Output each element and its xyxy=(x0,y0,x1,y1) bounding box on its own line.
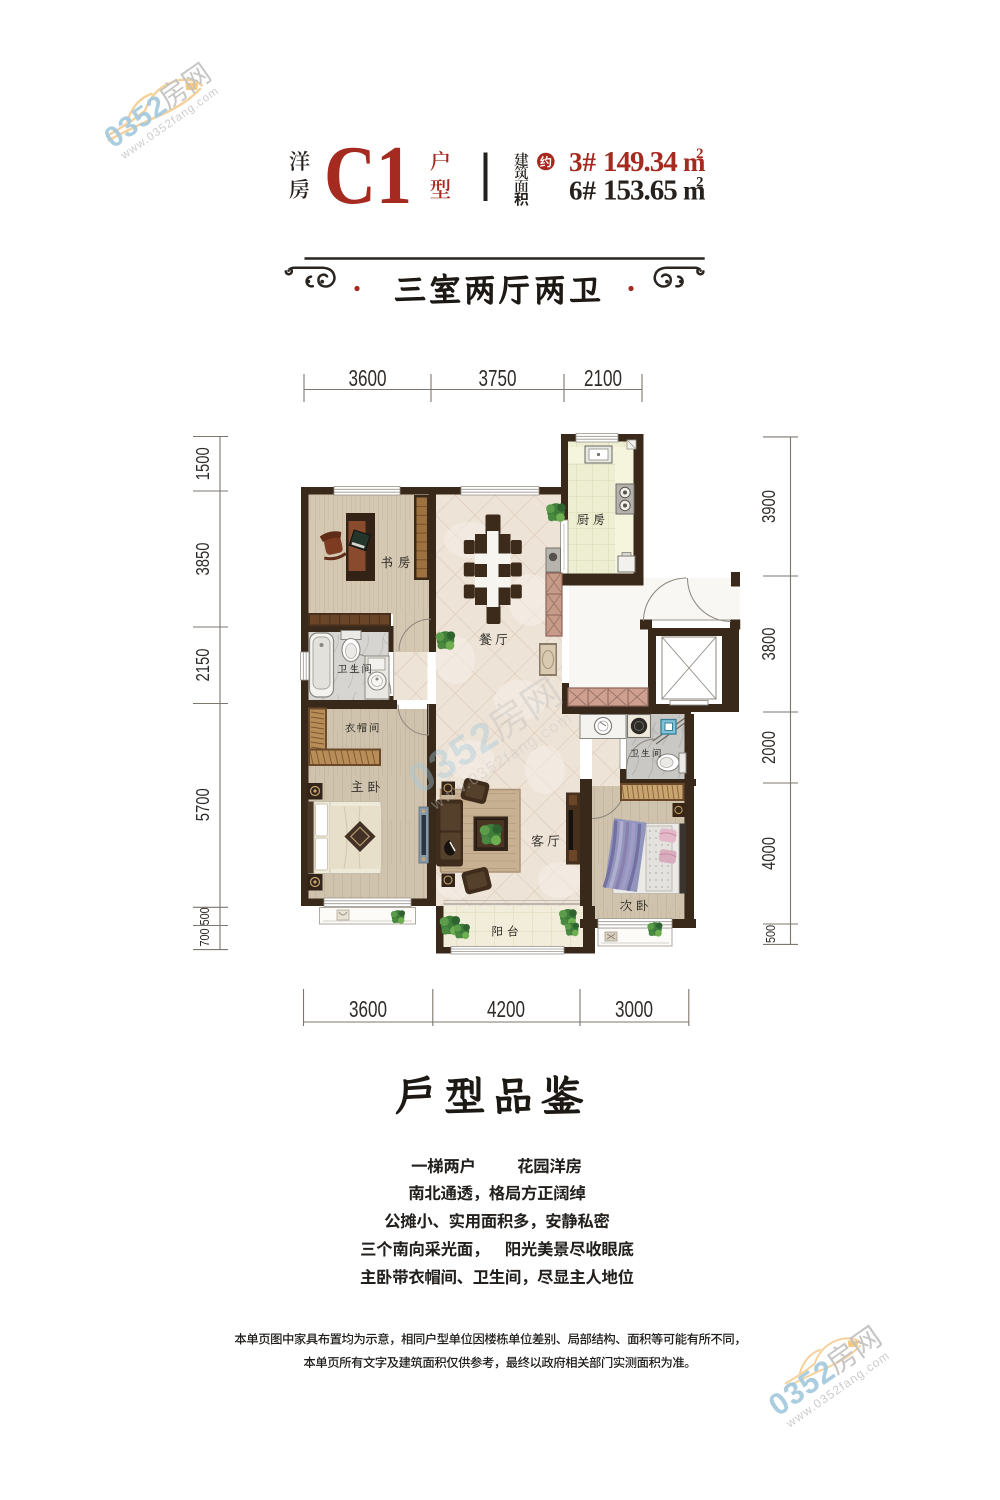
svg-text:4200: 4200 xyxy=(487,996,525,1022)
svg-text:3600: 3600 xyxy=(349,365,387,391)
svg-text:2150: 2150 xyxy=(192,649,213,682)
svg-text:2000: 2000 xyxy=(758,731,779,764)
svg-text:3800: 3800 xyxy=(758,628,779,661)
svg-text:C1: C1 xyxy=(324,129,412,222)
svg-text:1500: 1500 xyxy=(192,447,213,480)
svg-text:500: 500 xyxy=(197,907,212,925)
svg-text:3000: 3000 xyxy=(615,996,653,1022)
svg-text:2: 2 xyxy=(696,175,704,191)
svg-text:2100: 2100 xyxy=(584,365,622,391)
svg-text:6#: 6# xyxy=(569,176,597,206)
svg-text:3#: 3# xyxy=(569,147,597,177)
svg-text:500: 500 xyxy=(763,925,778,943)
svg-text:3600: 3600 xyxy=(349,996,387,1022)
svg-text:3900: 3900 xyxy=(758,490,779,523)
svg-text:5700: 5700 xyxy=(192,788,213,821)
svg-text:153.65: 153.65 xyxy=(603,175,677,207)
svg-text:3750: 3750 xyxy=(479,365,517,391)
svg-text:2: 2 xyxy=(696,146,704,162)
svg-text:149.34: 149.34 xyxy=(603,146,677,178)
svg-text:3850: 3850 xyxy=(192,543,213,576)
svg-text:4000: 4000 xyxy=(758,837,779,870)
svg-text:700: 700 xyxy=(197,929,212,947)
